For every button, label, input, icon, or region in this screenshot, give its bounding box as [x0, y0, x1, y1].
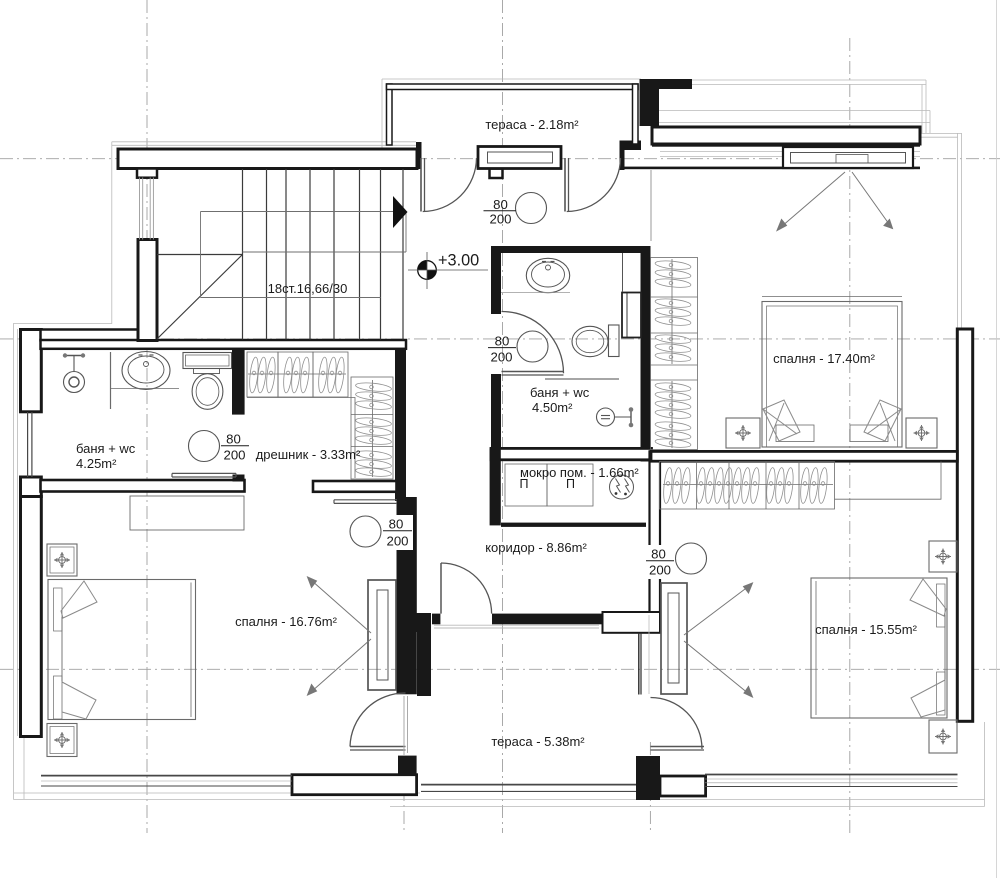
- svg-text:коридор - 8.86m²: коридор - 8.86m²: [485, 540, 587, 555]
- svg-text:4.50m²: 4.50m²: [532, 400, 573, 415]
- svg-text:спалня - 16.76m²: спалня - 16.76m²: [235, 614, 337, 629]
- svg-text:80: 80: [389, 517, 404, 532]
- svg-text:200: 200: [649, 563, 671, 578]
- svg-text:18ст.16,66/30: 18ст.16,66/30: [268, 281, 348, 296]
- svg-text:мокро пом. - 1.66m²: мокро пом. - 1.66m²: [520, 465, 639, 480]
- svg-text:П: П: [520, 477, 529, 491]
- svg-text:200: 200: [490, 350, 512, 365]
- svg-text:80: 80: [493, 197, 508, 212]
- svg-text:П: П: [566, 477, 575, 491]
- svg-text:спалня - 17.40m²: спалня - 17.40m²: [773, 351, 875, 366]
- svg-text:200: 200: [489, 212, 511, 227]
- svg-text:+3.00: +3.00: [438, 252, 479, 270]
- svg-text:баня + wc: баня + wc: [530, 385, 590, 400]
- svg-text:80: 80: [495, 334, 510, 349]
- svg-text:200: 200: [386, 534, 408, 549]
- svg-text:баня + wc: баня + wc: [76, 441, 136, 456]
- svg-text:4.25m²: 4.25m²: [76, 456, 117, 471]
- svg-text:тераса - 2.18m²: тераса - 2.18m²: [485, 117, 579, 132]
- svg-text:80: 80: [651, 547, 666, 562]
- svg-text:80: 80: [226, 432, 241, 447]
- svg-text:спалня - 15.55m²: спалня - 15.55m²: [815, 622, 917, 637]
- svg-text:дрешник - 3.33m²: дрешник - 3.33m²: [256, 447, 361, 462]
- svg-text:тераса - 5.38m²: тераса - 5.38m²: [491, 734, 585, 749]
- svg-text:200: 200: [223, 448, 245, 463]
